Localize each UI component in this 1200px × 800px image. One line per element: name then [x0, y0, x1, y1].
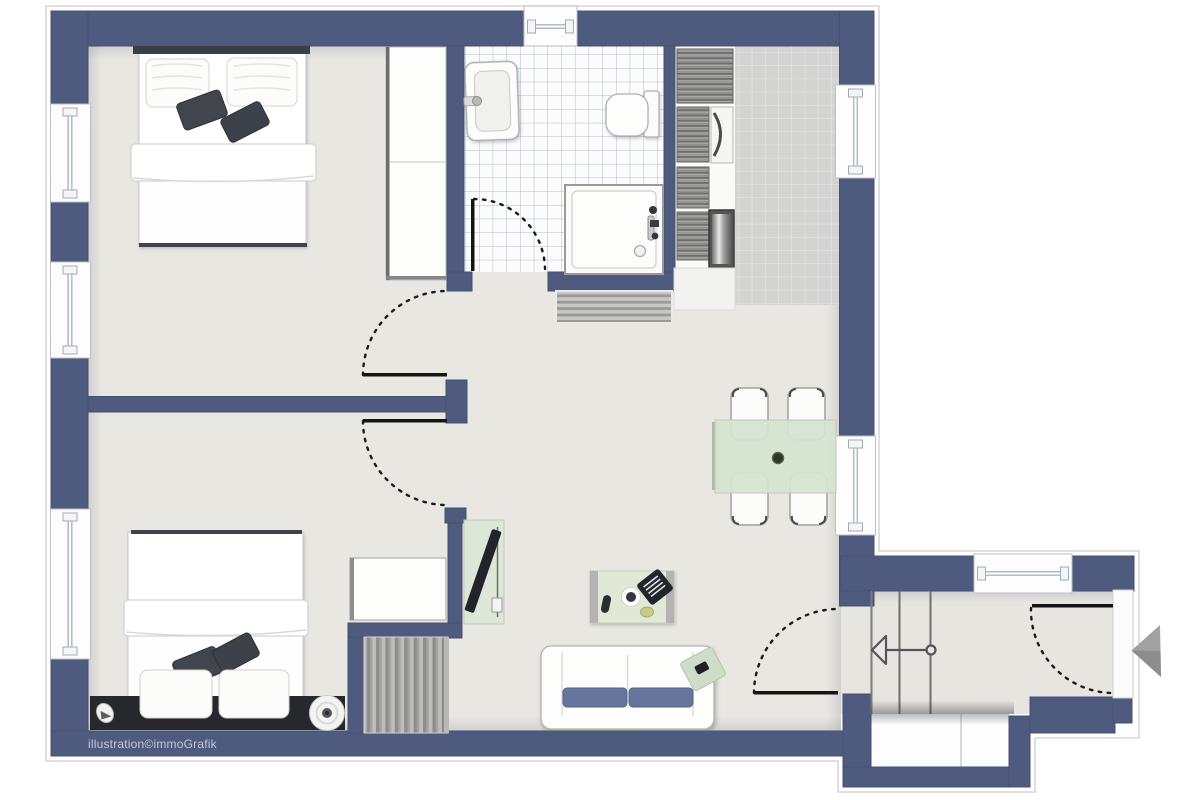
- svg-text:illustration©immoGrafik: illustration©immoGrafik: [88, 737, 218, 751]
